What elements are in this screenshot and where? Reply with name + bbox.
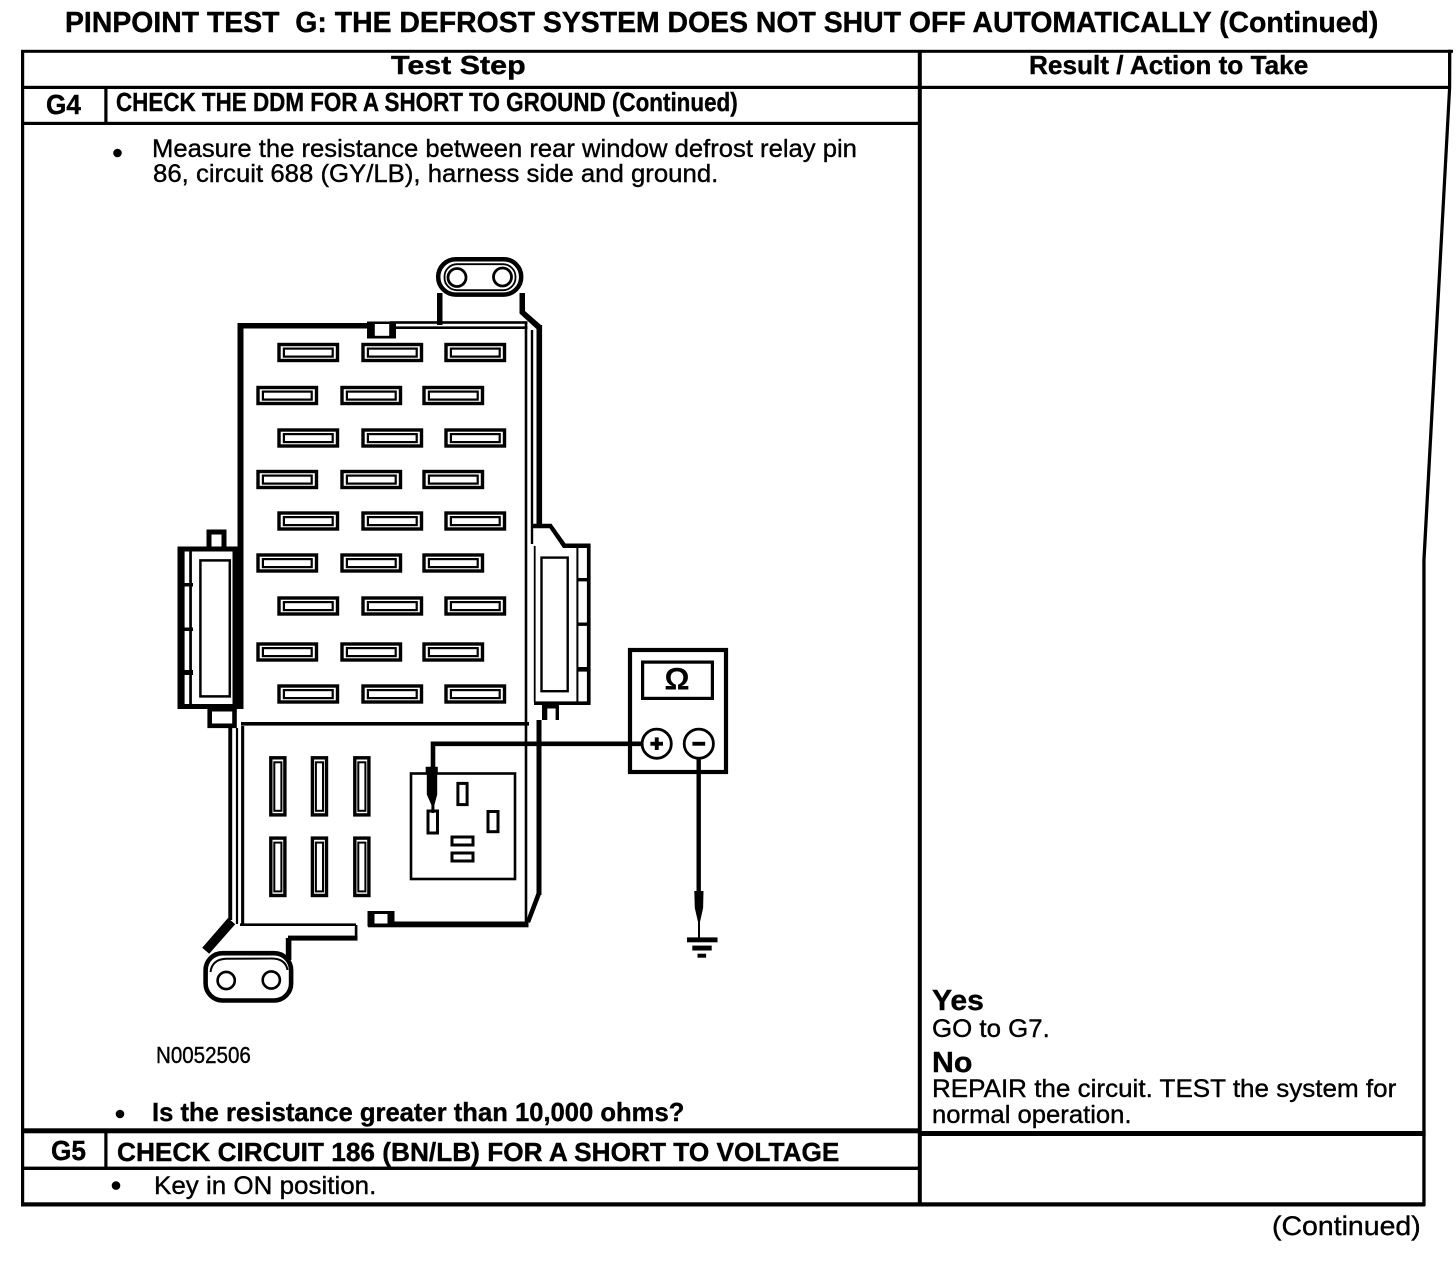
svg-text:Ω: Ω (664, 661, 689, 697)
